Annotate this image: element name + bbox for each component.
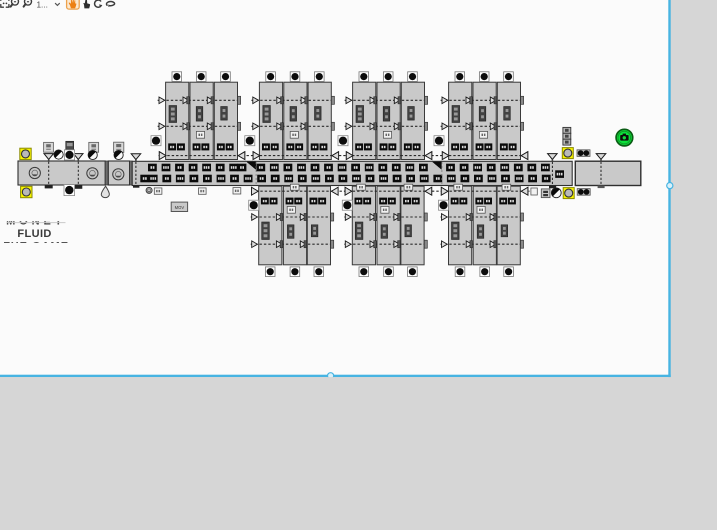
svg-text:FLUID: FLUID	[17, 228, 51, 240]
svg-text:MOV: MOV	[175, 205, 185, 210]
svg-text:1...: 1...	[37, 1, 48, 10]
